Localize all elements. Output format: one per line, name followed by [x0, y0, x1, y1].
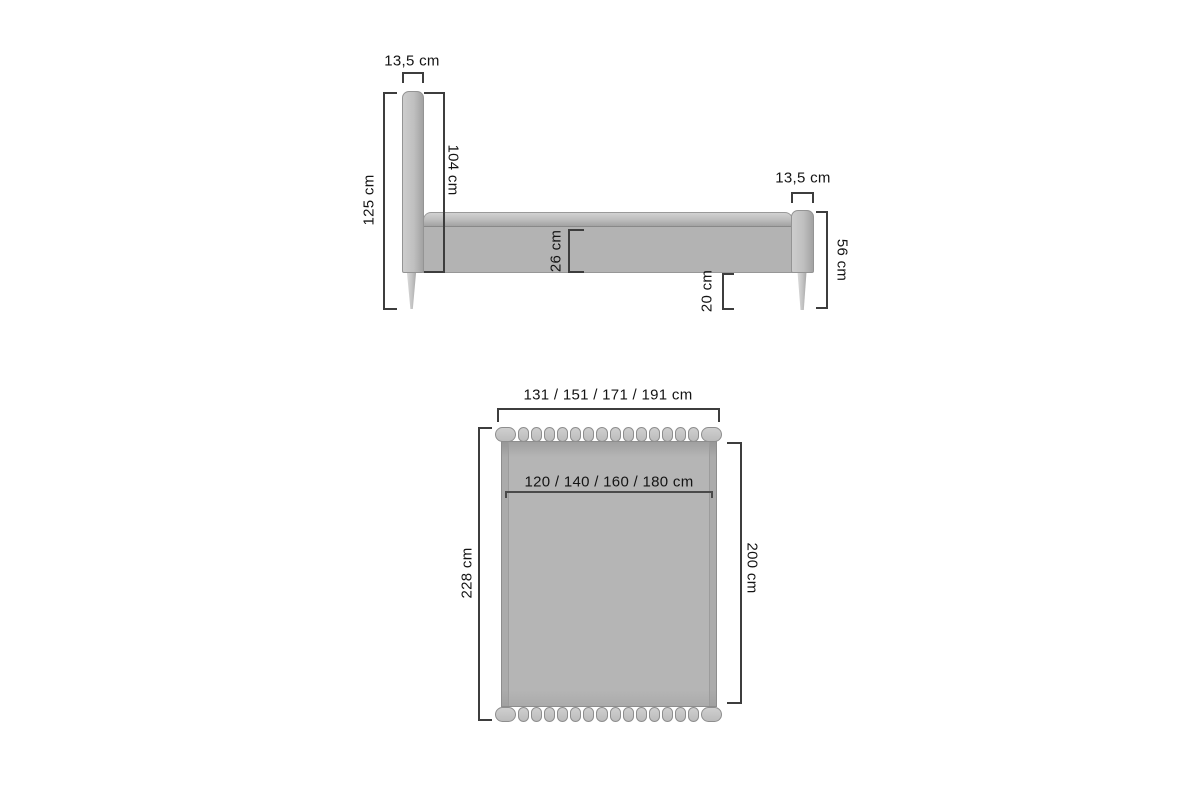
overall-width-label: 131 / 151 / 171 / 191 cm: [524, 387, 693, 404]
tufting-pill: [623, 707, 634, 722]
tufting-pill: [688, 707, 699, 722]
tufting-pill: [596, 427, 607, 442]
total-height-label: 125 cm: [361, 175, 378, 226]
dim-overall-width: [497, 408, 720, 422]
tufting-pill: [675, 427, 686, 442]
footboard-leg: [797, 272, 807, 310]
tufting-pill: [583, 707, 594, 722]
side-rail-height-label: 26 cm: [548, 230, 565, 272]
tufting-pill: [544, 427, 555, 442]
footboard-tufting-row: [495, 707, 722, 722]
footboard-height-label: 56 cm: [834, 239, 851, 281]
floor-clearance-label: 20 cm: [699, 270, 716, 312]
tufting-pill: [623, 427, 634, 442]
tufting-pill: [557, 427, 568, 442]
tufting-pill: [610, 707, 621, 722]
side-rail-right: [709, 442, 716, 706]
headboard-above-base-label: 104 cm: [445, 145, 462, 196]
bed-frame-rail: [423, 226, 793, 273]
tufting-pill: [495, 707, 516, 722]
tufting-pill: [531, 427, 542, 442]
bed-dimensions-diagram: 13,5 cm 125 cm 104 cm 26 cm 13,5 cm 56 c…: [0, 0, 1200, 800]
tufting-pill: [596, 707, 607, 722]
side-rail-left: [502, 442, 509, 706]
tufting-pill: [688, 427, 699, 442]
headboard-width-label: 13,5 cm: [384, 53, 439, 70]
tufting-pill: [544, 707, 555, 722]
tufting-pill: [557, 707, 568, 722]
mattress-width-line: [505, 491, 713, 498]
headboard-leg: [406, 272, 417, 309]
tufting-pill: [610, 427, 621, 442]
tufting-pill: [649, 427, 660, 442]
dim-footboard-depth: [791, 192, 814, 203]
tufting-pill: [675, 707, 686, 722]
footboard-depth-label: 13,5 cm: [775, 170, 830, 187]
tufting-pill: [662, 427, 673, 442]
dim-total-height: [383, 92, 397, 310]
mattress-length-label: 200 cm: [744, 543, 761, 594]
tufting-pill: [583, 427, 594, 442]
dim-headboard-above-base: [424, 92, 445, 273]
tufting-pill: [649, 707, 660, 722]
tufting-pill: [636, 707, 647, 722]
overall-length-label: 228 cm: [459, 548, 476, 599]
dim-headboard-width: [402, 72, 424, 83]
tufting-pill: [636, 427, 647, 442]
footboard: [791, 210, 814, 273]
tufting-pill: [701, 707, 722, 722]
tufting-pill: [662, 707, 673, 722]
tufting-pill: [518, 707, 529, 722]
headboard: [402, 91, 424, 273]
tufting-pill: [570, 707, 581, 722]
tufting-pill: [701, 427, 722, 442]
dim-footboard-height: [816, 211, 828, 309]
tufting-pill: [531, 707, 542, 722]
tufting-pill: [518, 427, 529, 442]
dim-mattress-length: [727, 442, 742, 704]
headboard-tufting-row: [495, 427, 722, 442]
dim-overall-length: [478, 427, 492, 721]
tufting-pill: [495, 427, 516, 442]
dim-side-rail-height: [568, 229, 584, 273]
tufting-pill: [570, 427, 581, 442]
mattress-width-label: 120 / 140 / 160 / 180 cm: [525, 474, 694, 491]
dim-floor-clearance: [722, 273, 734, 310]
